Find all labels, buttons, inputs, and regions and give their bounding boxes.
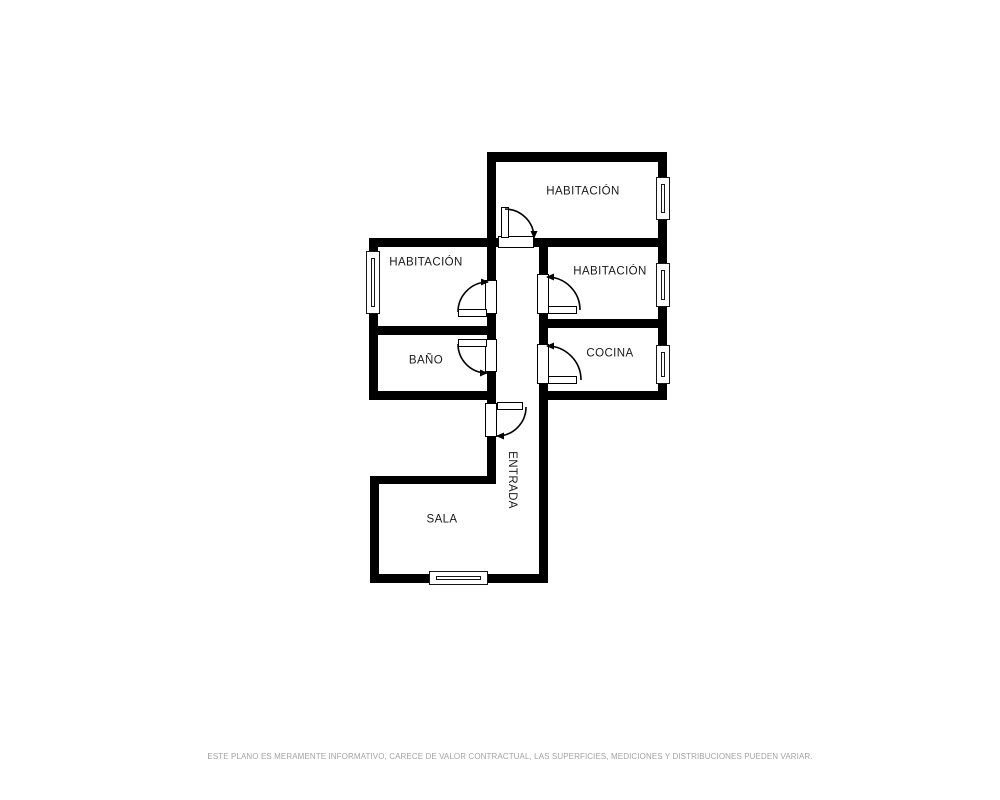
door-leaf-bano: [458, 339, 487, 347]
room-label-sala: SALA: [426, 514, 457, 526]
room-label-habitacion-top: HABITACIÓN: [546, 186, 619, 198]
door-opening-entrada: [485, 403, 497, 437]
door-arc-cocina: [547, 346, 581, 380]
wall-bano-bottom: [369, 391, 496, 400]
window-habitacion-top: [656, 177, 670, 220]
door-leaf-habitacion-left: [458, 309, 487, 317]
room-label-habitacion-right: HABITACIÓN: [573, 266, 646, 278]
window-sala: [429, 571, 488, 585]
wall-sala-top: [370, 476, 496, 484]
door-leaf-habitacion-top: [501, 207, 509, 238]
wall-divider-hab-cocina: [539, 319, 667, 328]
door-arc-entrada: [497, 407, 526, 436]
door-arc-habitacion-left: [458, 282, 488, 312]
window-habitacion-left: [366, 251, 380, 314]
floor-plan: HABITACIÓN HABITACIÓN HABITACIÓN BAÑO CO…: [0, 0, 1000, 800]
wall-divider-hab-bano: [369, 326, 496, 335]
window-habitacion-right: [656, 263, 670, 307]
wall-sala-left: [370, 476, 379, 583]
door-leaf-cocina: [548, 376, 577, 384]
door-swing-arcs: [0, 0, 1000, 800]
room-label-bano: BAÑO: [409, 355, 443, 367]
door-arc-habitacion-top: [505, 209, 534, 238]
wall-cocina-bottom: [539, 391, 667, 400]
wall-top-room-top: [487, 152, 667, 162]
door-leaf-entrada: [497, 402, 523, 410]
window-cocina: [656, 345, 670, 384]
room-label-cocina: COCINA: [586, 348, 633, 360]
room-label-habitacion-left: HABITACIÓN: [389, 257, 462, 269]
door-arc-bano: [458, 344, 487, 373]
door-leaf-habitacion-right: [548, 306, 577, 314]
disclaimer-text: ESTE PLANO ES MERAMENTE INFORMATIVO, CAR…: [20, 751, 1000, 762]
room-label-entrada: ENTRADA: [505, 451, 517, 509]
